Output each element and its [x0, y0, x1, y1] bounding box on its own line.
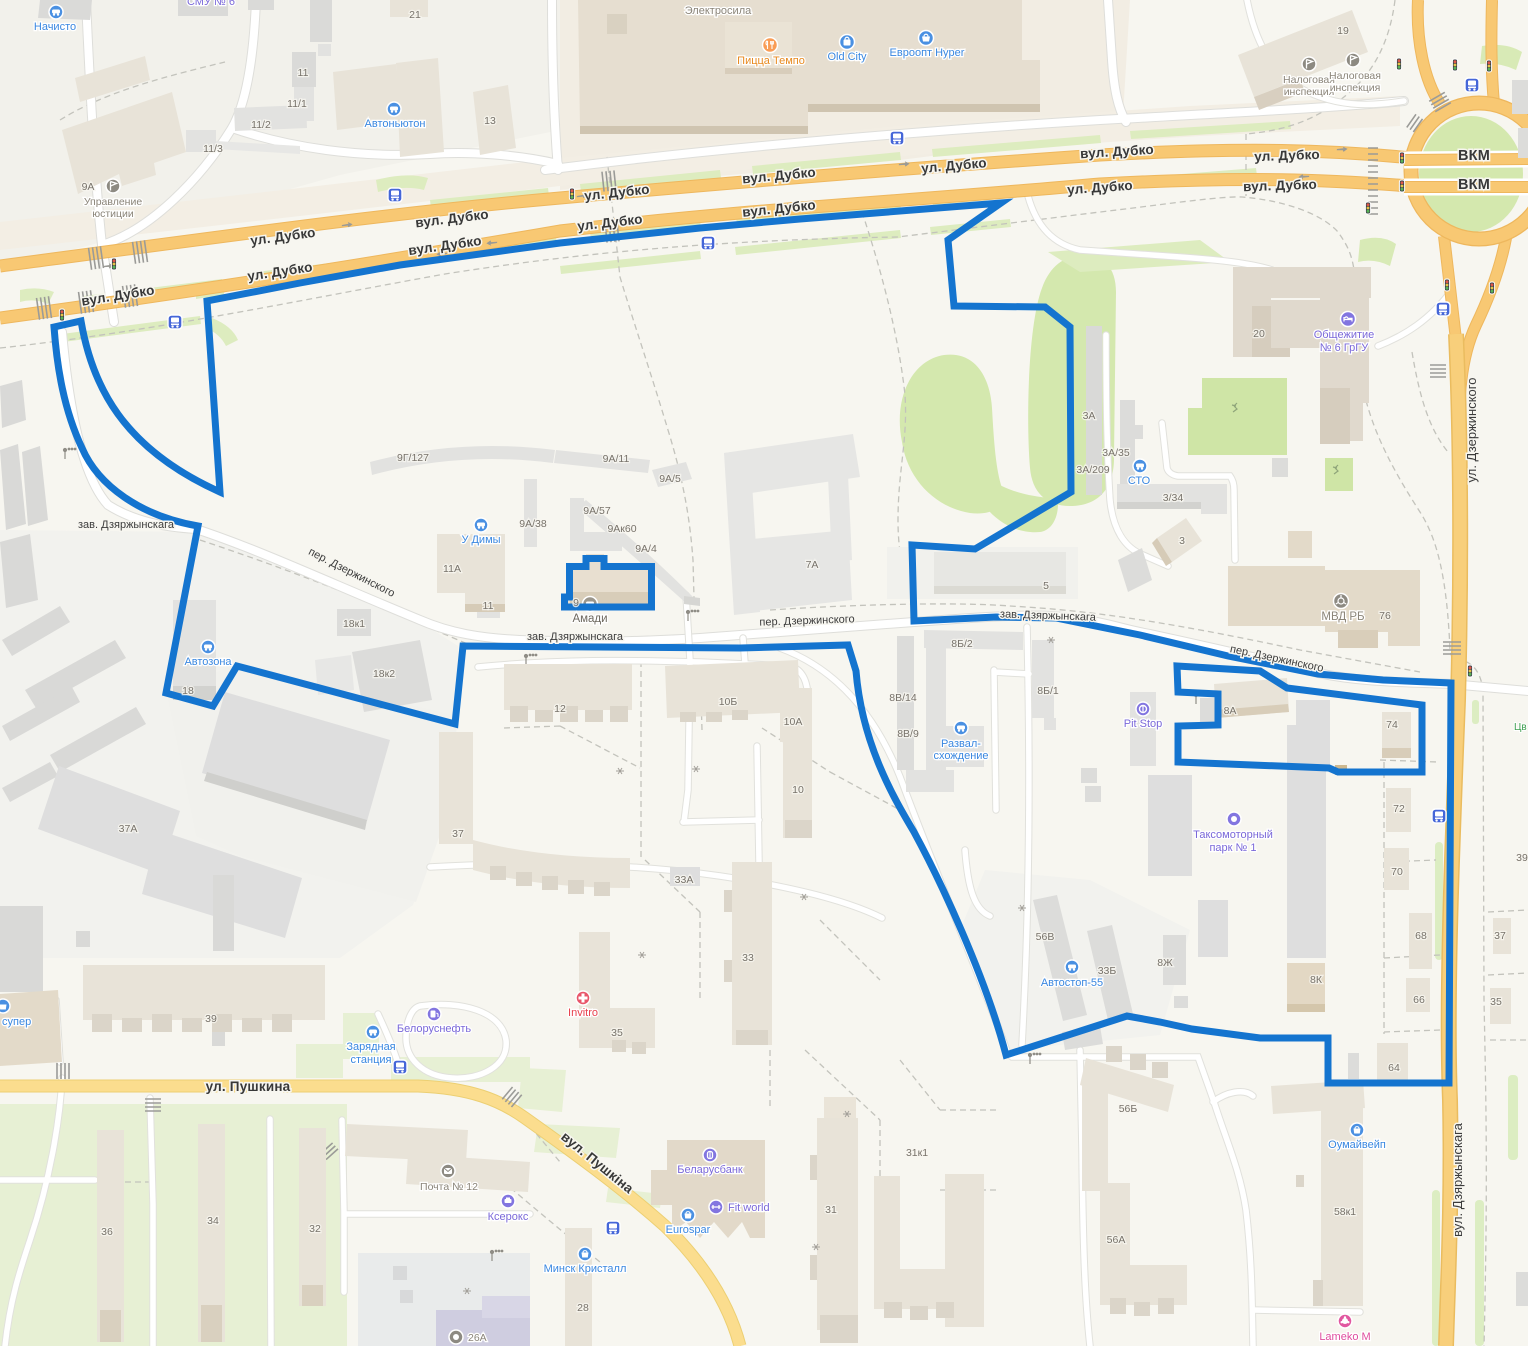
svg-text:19: 19 — [1337, 25, 1349, 37]
svg-text:парк № 1: парк № 1 — [1209, 842, 1256, 854]
svg-text:12: 12 — [554, 703, 566, 715]
svg-text:8В/14: 8В/14 — [889, 692, 917, 704]
svg-text:Оумайвейп: Оумайвейп — [1328, 1139, 1386, 1151]
svg-text:33Б: 33Б — [1098, 965, 1117, 977]
svg-text:5: 5 — [1043, 580, 1049, 592]
svg-text:9А/38: 9А/38 — [519, 518, 547, 530]
svg-text:8Б/1: 8Б/1 — [1037, 685, 1059, 697]
svg-text:Автостоп-55: Автостоп-55 — [1041, 977, 1103, 989]
svg-text:56В: 56В — [1036, 931, 1055, 943]
svg-text:11/3: 11/3 — [203, 143, 223, 155]
svg-text:9А/11: 9А/11 — [603, 453, 630, 465]
svg-text:8К: 8К — [1310, 974, 1323, 986]
svg-text:Invitro: Invitro — [568, 1007, 598, 1019]
svg-text:39: 39 — [205, 1013, 217, 1025]
svg-text:72: 72 — [1393, 803, 1405, 815]
svg-text:37: 37 — [452, 828, 464, 840]
svg-text:64: 64 — [1388, 1062, 1400, 1074]
svg-text:Начисто: Начисто — [34, 21, 76, 33]
svg-text:28: 28 — [577, 1302, 589, 1314]
svg-text:37А: 37А — [119, 823, 138, 835]
svg-text:58к1: 58к1 — [1334, 1206, 1356, 1218]
svg-text:9: 9 — [573, 597, 579, 609]
svg-text:Автоньютон: Автоньютон — [365, 118, 426, 130]
svg-text:11/1: 11/1 — [287, 98, 307, 110]
svg-text:9А/4: 9А/4 — [635, 543, 657, 555]
svg-text:8Б/2: 8Б/2 — [951, 638, 973, 650]
svg-text:36: 36 — [101, 1226, 113, 1238]
svg-text:31: 31 — [825, 1204, 837, 1216]
svg-text:МВД РБ: МВД РБ — [1321, 611, 1364, 623]
svg-text:инспекция: инспекция — [1284, 86, 1335, 98]
svg-text:3/34: 3/34 — [1163, 492, 1184, 504]
svg-text:33А: 33А — [675, 874, 694, 886]
svg-text:Ксерокс: Ксерокс — [488, 1211, 529, 1223]
svg-text:66: 66 — [1413, 994, 1425, 1006]
svg-text:18к2: 18к2 — [373, 668, 395, 680]
svg-text:39: 39 — [1516, 852, 1528, 864]
svg-text:ВКМ: ВКМ — [1458, 177, 1490, 193]
svg-text:56Б: 56Б — [1119, 1103, 1138, 1115]
svg-text:20: 20 — [1253, 328, 1265, 340]
svg-text:18: 18 — [182, 685, 194, 697]
svg-text:8В/9: 8В/9 — [897, 728, 919, 740]
svg-text:8Ж: 8Ж — [1157, 957, 1173, 969]
svg-text:Цв: Цв — [1514, 722, 1527, 733]
svg-text:Налоговая: Налоговая — [1329, 70, 1381, 82]
svg-text:10: 10 — [792, 784, 804, 796]
svg-text:инспекция: инспекция — [1330, 82, 1381, 94]
svg-text:Fit world: Fit world — [728, 1202, 770, 1214]
svg-text:Автозона: Автозона — [184, 656, 232, 668]
svg-text:11/2: 11/2 — [251, 119, 271, 131]
svg-text:31к1: 31к1 — [906, 1147, 928, 1159]
svg-text:вул. Дубко: вул. Дубко — [1243, 177, 1317, 195]
svg-text:Old City: Old City — [827, 51, 867, 63]
svg-text:зав. Дзяржынскага: зав. Дзяржынскага — [78, 519, 175, 531]
svg-text:74: 74 — [1386, 719, 1398, 731]
svg-text:станция: станция — [350, 1054, 391, 1066]
svg-text:3А/209: 3А/209 — [1076, 464, 1109, 476]
svg-text:70: 70 — [1391, 866, 1403, 878]
svg-text:Налоговая: Налоговая — [1283, 74, 1335, 86]
svg-text:Белоруснефть: Белоруснефть — [397, 1023, 472, 1035]
svg-text:32: 32 — [309, 1223, 321, 1235]
svg-text:У Димы: У Димы — [461, 534, 500, 546]
svg-text:Eurospar: Eurospar — [666, 1224, 711, 1236]
svg-text:11: 11 — [483, 600, 494, 612]
svg-text:ВКМ: ВКМ — [1458, 148, 1490, 164]
svg-text:Lameko M: Lameko M — [1319, 1331, 1370, 1343]
svg-text:10Б: 10Б — [719, 696, 738, 708]
svg-text:Таксомоторный: Таксомоторный — [1193, 829, 1273, 841]
svg-text:СМУ № 6: СМУ № 6 — [187, 0, 235, 8]
svg-text:11А: 11А — [443, 563, 461, 575]
svg-text:8А: 8А — [1224, 705, 1237, 717]
svg-text:35: 35 — [1490, 996, 1502, 1008]
svg-text:Пицца Темпо: Пицца Темпо — [737, 55, 805, 67]
svg-text:№ 6 ГрГУ: № 6 ГрГУ — [1320, 342, 1369, 354]
svg-text:35: 35 — [611, 1027, 623, 1039]
svg-text:9А: 9А — [82, 181, 95, 193]
svg-text:9Ак60: 9Ак60 — [607, 523, 636, 535]
svg-text:37: 37 — [1494, 930, 1506, 942]
svg-text:Минск Кристалл: Минск Кристалл — [544, 1263, 627, 1275]
svg-text:вул. Дзяржынскага: вул. Дзяржынскага — [1450, 1122, 1465, 1236]
svg-text:11: 11 — [298, 67, 309, 79]
svg-text:3: 3 — [1179, 535, 1185, 547]
svg-text:10А: 10А — [784, 716, 803, 728]
svg-text:Общежитие: Общежитие — [1314, 329, 1375, 341]
svg-text:34: 34 — [207, 1215, 219, 1227]
svg-text:супер: супер — [2, 1016, 31, 1028]
svg-text:Беларусбанк: Беларусбанк — [677, 1164, 743, 1176]
svg-text:Почта № 12: Почта № 12 — [420, 1181, 478, 1193]
svg-text:Управление: Управление — [84, 196, 143, 208]
svg-text:схождение: схождение — [933, 750, 988, 762]
svg-text:33: 33 — [742, 952, 754, 964]
svg-text:зав. Дзяржынскага: зав. Дзяржынскага — [527, 631, 624, 643]
svg-text:9Г/127: 9Г/127 — [397, 452, 429, 464]
svg-text:9А/57: 9А/57 — [583, 505, 611, 517]
svg-text:3А/35: 3А/35 — [1102, 447, 1130, 459]
svg-text:ул. Пушкина: ул. Пушкина — [206, 1079, 291, 1094]
svg-text:Электросила: Электросила — [685, 5, 752, 17]
svg-text:7А: 7А — [806, 559, 819, 571]
svg-text:СТО: СТО — [1128, 475, 1151, 487]
svg-text:3А: 3А — [1083, 410, 1096, 422]
svg-text:76: 76 — [1379, 610, 1391, 622]
svg-text:Евроопт Hyper: Евроопт Hyper — [890, 47, 965, 59]
svg-text:68: 68 — [1415, 930, 1427, 942]
svg-text:9А/5: 9А/5 — [659, 473, 681, 485]
svg-text:юстиции: юстиции — [92, 208, 134, 220]
svg-text:ул. Дзержинского: ул. Дзержинского — [1464, 378, 1479, 483]
svg-text:21: 21 — [409, 9, 421, 21]
svg-text:Зарядная: Зарядная — [346, 1041, 395, 1053]
svg-text:13: 13 — [484, 115, 496, 127]
svg-text:ул. Дубко: ул. Дубко — [1254, 147, 1320, 164]
svg-text:18к1: 18к1 — [343, 618, 365, 630]
svg-text:Амади: Амади — [572, 613, 607, 625]
svg-text:Развал-: Развал- — [941, 738, 981, 750]
svg-text:56А: 56А — [1107, 1234, 1126, 1246]
svg-text:Pit Stop: Pit Stop — [1124, 718, 1163, 730]
svg-text:26А: 26А — [468, 1332, 487, 1344]
